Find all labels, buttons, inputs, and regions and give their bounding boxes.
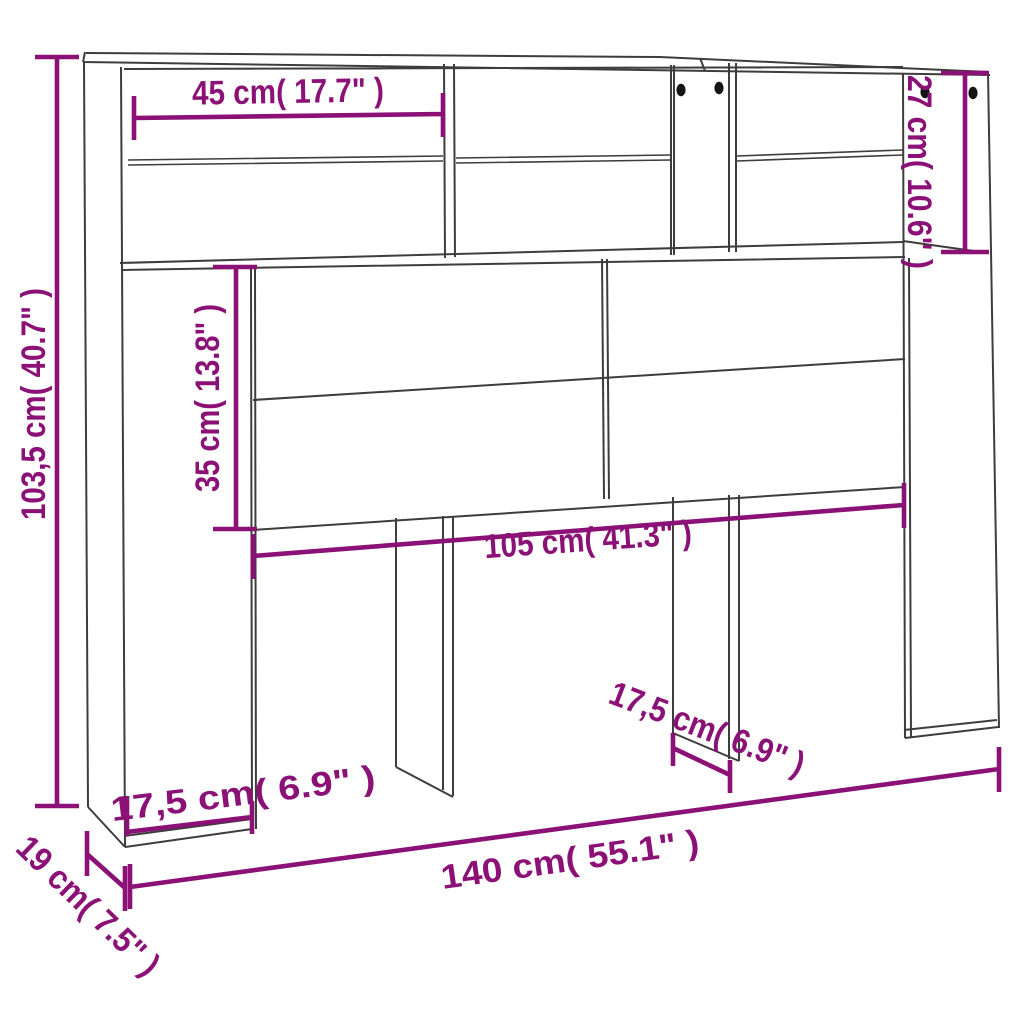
dim-total-width-line [130, 747, 999, 909]
headboard-cabinet-diagram: 103,5 cm( 40.7" ) 45 cm( 17.7" ) 27 cm( … [0, 0, 1024, 1024]
dim-side-width: 17,5 cm( 6.9" ) [109, 759, 378, 836]
divider-left [444, 64, 455, 258]
top-panel [83, 52, 990, 75]
dim-leg-width: 17,5 cm( 6.9" ) [604, 674, 810, 793]
dim-top-right-height-label: 27 cm( 10.6" ) [900, 75, 938, 269]
shelf-middle-compartment [456, 155, 671, 163]
dimension-diagram-page: 103,5 cm( 40.7" ) 45 cm( 17.7" ) 27 cm( … [0, 0, 1024, 1024]
screw-hole-dot [968, 87, 977, 99]
right-cabinet-bottom [904, 720, 998, 738]
dim-inner-width: 105 cm( 41.3" ) [253, 483, 904, 579]
dim-panel-height: 35 cm( 13.8" ) [189, 267, 257, 529]
dim-top-right-height-line [941, 73, 989, 252]
dim-depth: 19 cm( 7.5" ) [9, 828, 168, 983]
dim-shelf-width: 45 cm( 17.7" ) [134, 71, 443, 140]
left-side-panel [84, 62, 125, 846]
dim-total-height: 103,5 cm( 40.7" ) [15, 57, 79, 806]
dim-total-width: 140 cm( 55.1" ) [130, 747, 999, 909]
dim-total-height-label: 103,5 cm( 40.7" ) [15, 288, 53, 520]
dim-top-right-height: 27 cm( 10.6" ) [900, 73, 989, 269]
dim-shelf-width-label: 45 cm( 17.7" ) [192, 71, 385, 112]
shelf-left-compartment [128, 156, 443, 165]
dim-panel-height-label: 35 cm( 13.8" ) [189, 304, 227, 492]
dim-total-width-label: 140 cm( 55.1" ) [439, 823, 702, 897]
screw-hole-dot [714, 82, 723, 94]
divider-right [729, 63, 736, 252]
divider-face [671, 65, 674, 255]
dim-leg-width-label: 17,5 cm( 6.9" ) [604, 674, 810, 783]
leg-left [396, 516, 453, 797]
screw-hole-dot [676, 84, 685, 96]
dim-inner-width-label: 105 cm( 41.3" ) [483, 514, 693, 566]
shelf-right-compartment [737, 150, 903, 161]
